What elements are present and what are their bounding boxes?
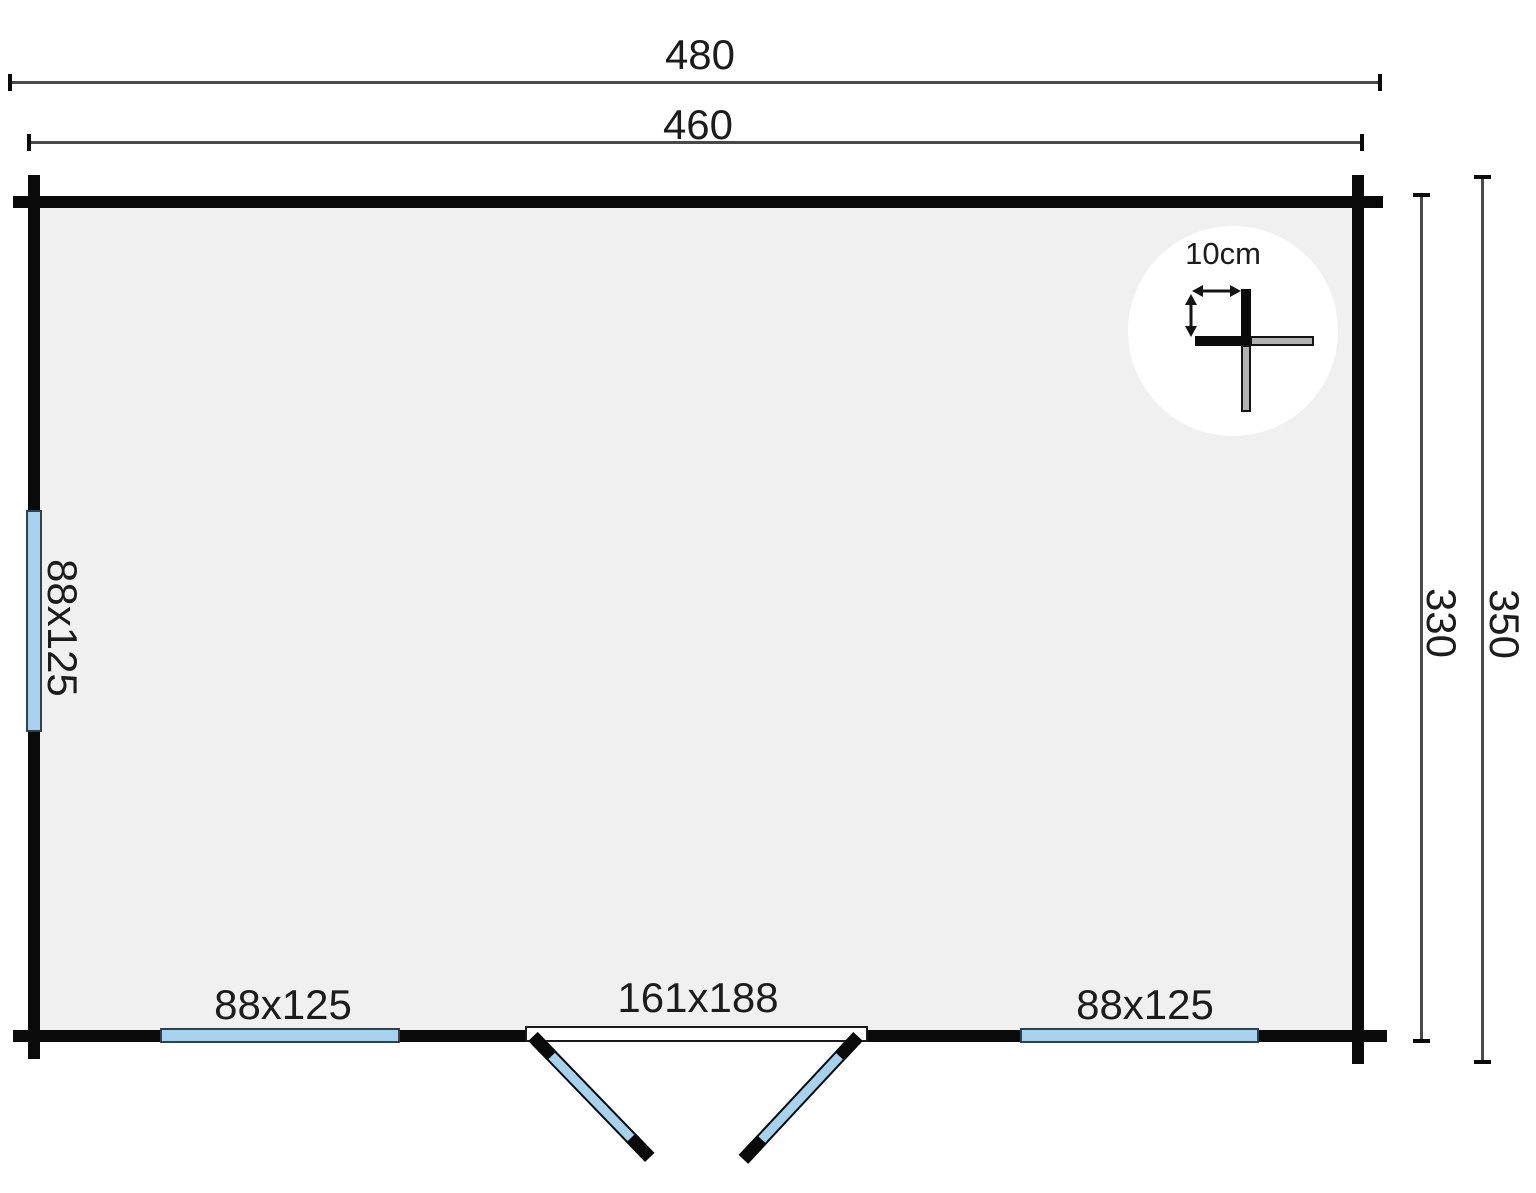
dimension-tick — [1413, 1039, 1430, 1043]
dimension-line-outer-width — [10, 81, 1382, 84]
dimension-tick — [1474, 175, 1491, 179]
door-edge-cap — [626, 1133, 654, 1161]
wall-top — [13, 196, 1383, 208]
detail-log-end-horizontal — [1250, 336, 1314, 346]
detail-dimension-arrows — [1178, 278, 1248, 344]
door-threshold — [525, 1026, 868, 1042]
dimension-tick — [1474, 1060, 1491, 1064]
horizontal-double-arrow-icon — [1192, 285, 1241, 297]
dimension-line-inner-width — [29, 141, 1363, 144]
dimension-tick — [1378, 74, 1382, 91]
dimension-tick — [1413, 193, 1430, 197]
window-bottom-right — [1020, 1028, 1259, 1043]
wall-right — [1352, 175, 1364, 1064]
dimension-tick — [1360, 134, 1364, 151]
wall-thickness-label: 10cm — [1163, 237, 1283, 270]
vertical-double-arrow-icon — [1185, 294, 1197, 337]
window-left-size-label: 88x125 — [40, 559, 84, 683]
dimension-tick — [8, 74, 12, 91]
window-bottom-left — [160, 1028, 400, 1043]
dimension-label-outer-depth: 350 — [1482, 566, 1526, 682]
dimension-label-outer-width: 480 — [600, 33, 800, 77]
door-leaf-left — [528, 1032, 654, 1162]
door-leaf-right — [739, 1032, 863, 1164]
window-bottom-left-size-label: 88x125 — [183, 983, 383, 1027]
window-bottom-right-size-label: 88x125 — [1045, 983, 1245, 1027]
dimension-tick — [27, 134, 31, 151]
dimension-label-inner-depth: 330 — [1419, 565, 1463, 681]
detail-log-end-vertical — [1241, 345, 1251, 412]
door-edge-cap — [739, 1135, 767, 1164]
floor-plan: 480 460 88x125 88x125 161x188 88x125 330… — [0, 0, 1536, 1193]
door-size-label: 161x188 — [598, 976, 798, 1020]
